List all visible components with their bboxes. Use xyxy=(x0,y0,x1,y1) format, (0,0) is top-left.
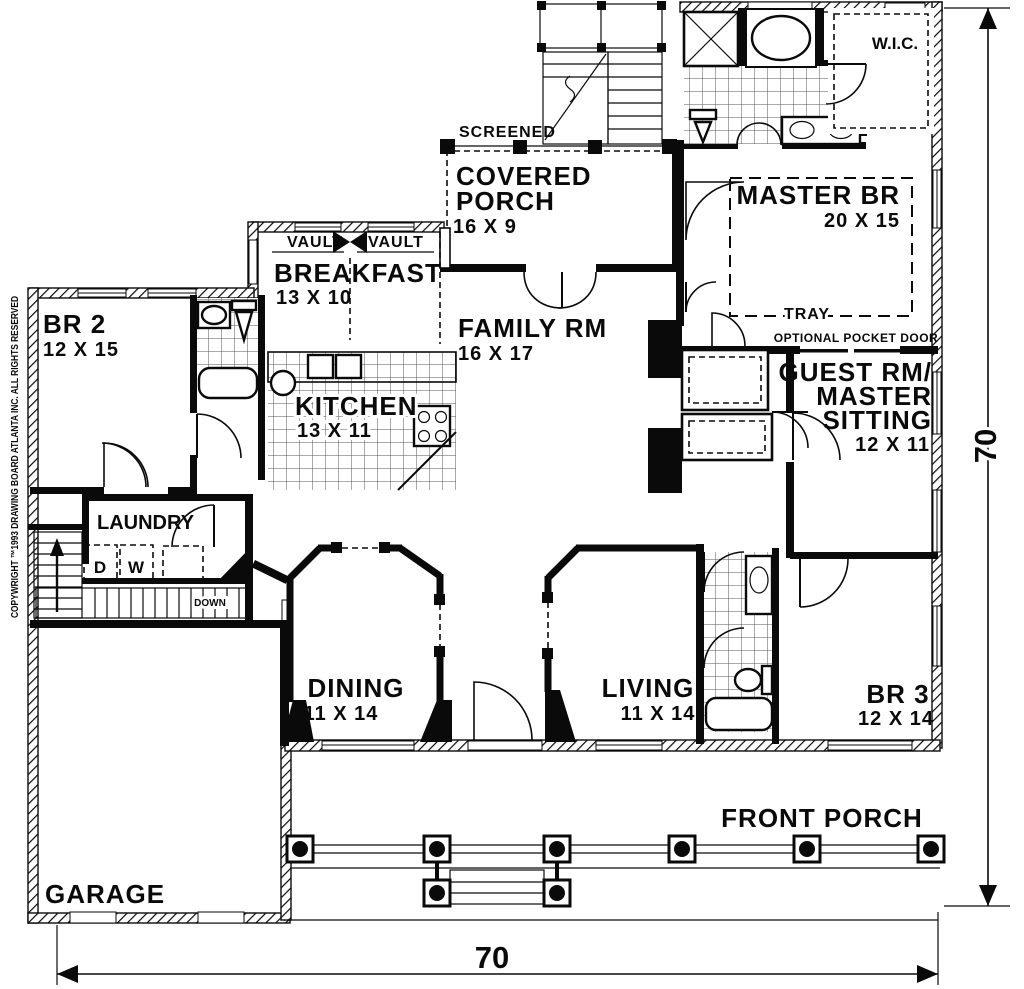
label-dining: DINING xyxy=(308,673,405,703)
label-porch: PORCH xyxy=(456,186,555,216)
label-family-dims: 16 X 17 xyxy=(458,343,534,365)
br3-door xyxy=(800,559,848,607)
copyright-text: COPYWRIGHT ™1993 DRAWING BOARD ATLANTA I… xyxy=(10,296,21,618)
br2-bath xyxy=(102,298,258,487)
label-guest-line3: SITTING xyxy=(822,405,932,435)
label-living: LIVING xyxy=(602,673,695,703)
front-porch xyxy=(287,836,944,906)
label-optional-pocket-door: OPTIONAL POCKET DOOR xyxy=(774,331,938,345)
label-kitchen: KITCHEN xyxy=(295,391,418,421)
label-down: DOWN xyxy=(194,598,226,609)
hall-bath xyxy=(704,552,772,732)
dim-height-70: 70 xyxy=(968,429,1003,463)
floor-plan-drawing: COPYWRIGHT ™1993 DRAWING BOARD ATLANTA I… xyxy=(0,0,1024,989)
label-br2: BR 2 xyxy=(43,309,106,339)
label-breakfast-dims: 13 X 10 xyxy=(276,287,352,309)
label-br3: BR 3 xyxy=(866,679,929,709)
label-family: FAMILY RM xyxy=(458,313,607,343)
label-garage: GARAGE xyxy=(45,879,165,909)
label-vault-left: VAULT xyxy=(287,234,343,251)
label-vault-right: VAULT xyxy=(368,234,424,251)
label-guest-dims: 12 X 11 xyxy=(855,434,930,456)
label-screened: SCREENED xyxy=(459,124,556,141)
label-tray: TRAY xyxy=(784,306,830,323)
label-dining-dims: 11 X 14 xyxy=(304,703,379,725)
label-master: MASTER BR xyxy=(736,180,900,210)
label-laundry: LAUNDRY xyxy=(97,512,195,534)
label-living-dims: 11 X 14 xyxy=(621,703,696,725)
label-front-porch: FRONT PORCH xyxy=(721,803,923,833)
label-master-dims: 20 X 15 xyxy=(824,210,900,232)
rear-deck-stairs xyxy=(537,1,666,144)
label-breakfast: BREAKFAST xyxy=(274,258,442,288)
floor-plan-page: COPYWRIGHT ™1993 DRAWING BOARD ATLANTA I… xyxy=(0,0,1024,989)
label-dryer: D xyxy=(94,558,106,577)
label-wic: W.I.C. xyxy=(872,34,918,53)
label-washer: W xyxy=(128,558,145,577)
labels: BR 2 12 X 15 VAULT VAULT BREAKFAST 13 X … xyxy=(43,34,1003,975)
porch-posts xyxy=(287,836,944,862)
label-covered-porch-dims: 16 X 9 xyxy=(453,216,517,238)
label-br3-dims: 12 X 14 xyxy=(858,708,934,730)
label-kitchen-dims: 13 X 11 xyxy=(297,420,372,442)
dim-width-70: 70 xyxy=(475,940,509,975)
label-br2-dims: 12 X 15 xyxy=(43,339,119,361)
